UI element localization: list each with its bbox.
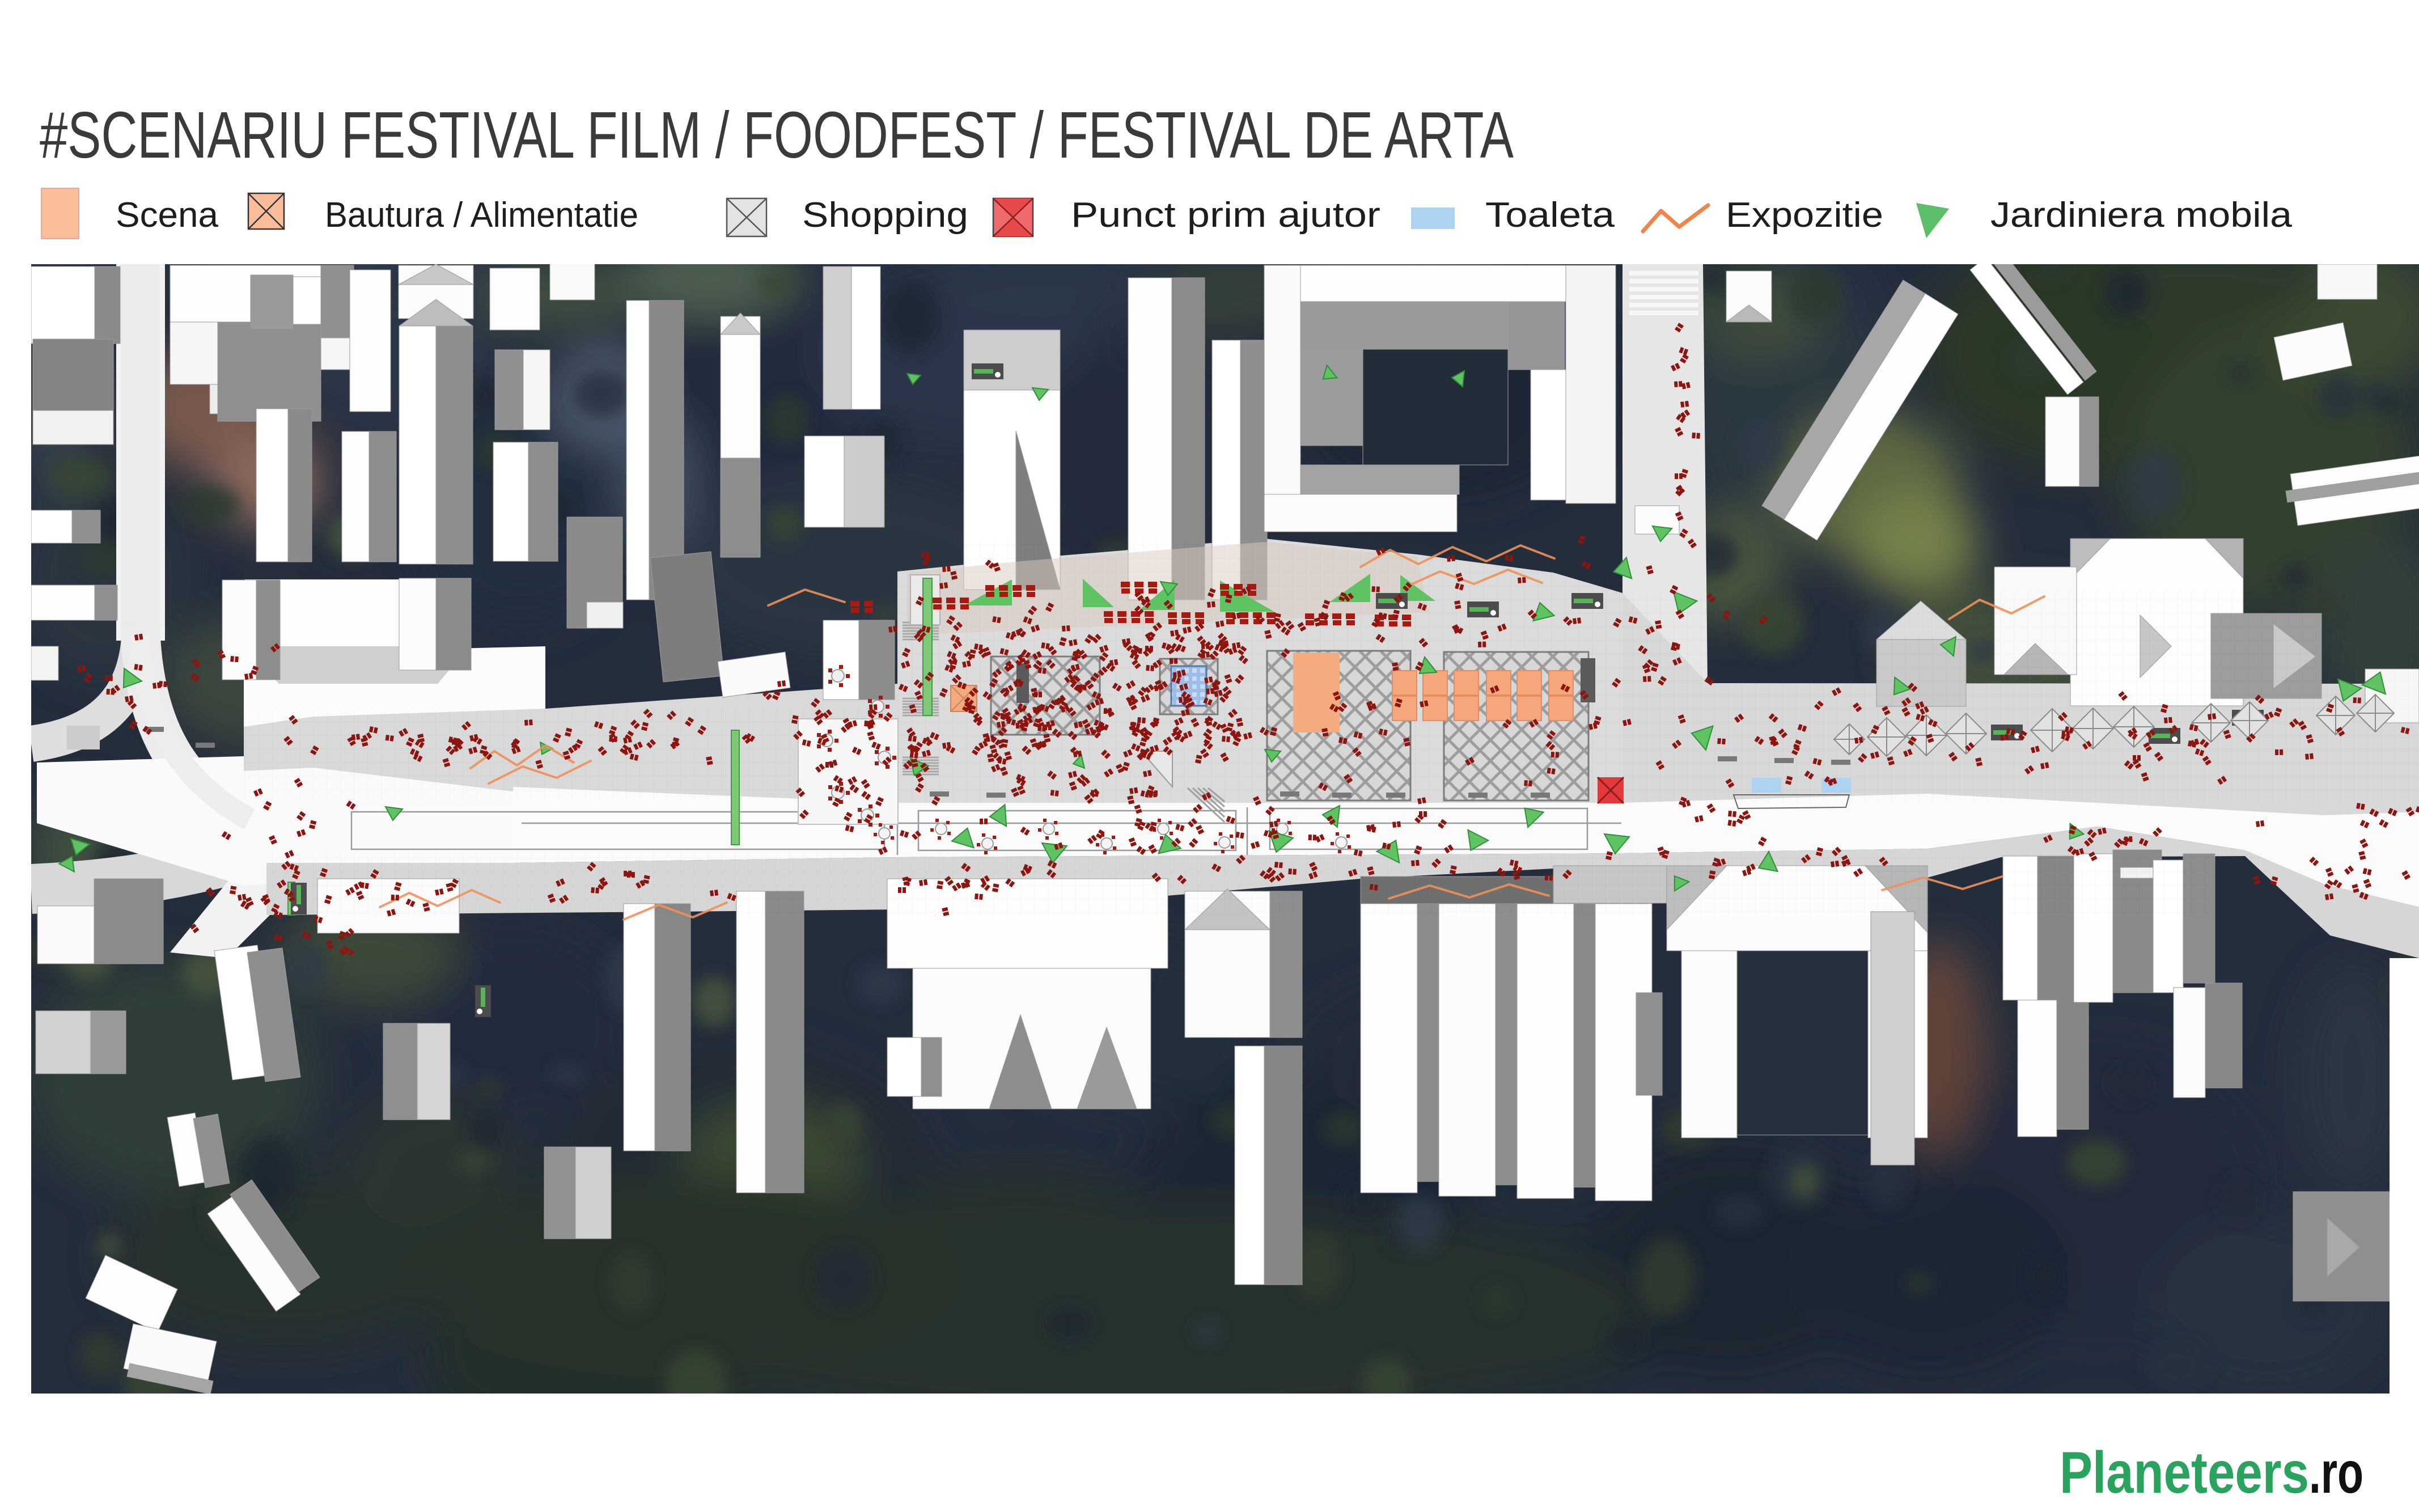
svg-text:Expozitie: Expozitie	[1726, 196, 1883, 235]
svg-text:Punct prim ajutor: Punct prim ajutor	[1071, 196, 1380, 235]
svg-text:Shopping: Shopping	[802, 196, 968, 235]
svg-text:.ro: .ro	[2309, 1440, 2363, 1506]
svg-text:Bautura / Alimentatie: Bautura / Alimentatie	[325, 196, 638, 235]
svg-text:Scena: Scena	[116, 196, 219, 235]
svg-text:Planeteers: Planeteers	[2060, 1440, 2309, 1506]
svg-text:Jardiniera mobila: Jardiniera mobila	[1990, 196, 2293, 235]
svg-text:#SCENARIU FESTIVAL FILM / FOOD: #SCENARIU FESTIVAL FILM / FOODFEST / FES…	[40, 98, 1514, 172]
svg-text:Toaleta: Toaleta	[1485, 196, 1615, 235]
